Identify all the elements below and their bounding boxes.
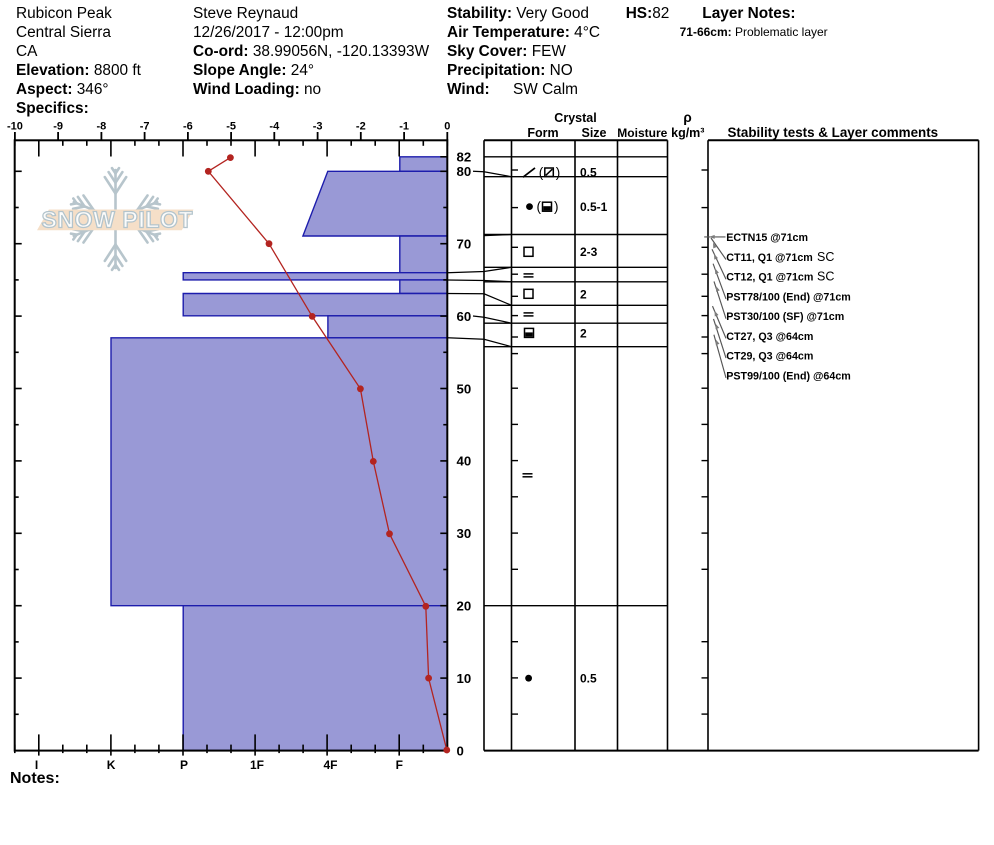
svg-text:0: 0 xyxy=(457,743,464,758)
svg-text:(: ( xyxy=(539,165,544,180)
svg-text:): ) xyxy=(554,199,559,214)
svg-text:0.5-1: 0.5-1 xyxy=(580,200,608,214)
svg-text:Notes:: Notes: xyxy=(10,770,60,787)
svg-text:Size: Size xyxy=(581,126,606,140)
svg-text:PST99/100 (End) @64cm: PST99/100 (End) @64cm xyxy=(726,370,850,382)
svg-text:-4: -4 xyxy=(269,121,280,133)
svg-text:-10: -10 xyxy=(7,121,23,133)
svg-text:SC: SC xyxy=(817,250,834,264)
svg-text:Specifics:: Specifics: xyxy=(16,100,89,117)
svg-text:4F: 4F xyxy=(323,758,337,772)
svg-text:0: 0 xyxy=(444,121,450,133)
svg-text:Steve Reynaud: Steve Reynaud xyxy=(193,5,298,22)
svg-text:0.5: 0.5 xyxy=(580,165,597,179)
svg-text:-5: -5 xyxy=(226,121,236,133)
svg-text:2: 2 xyxy=(580,326,587,340)
svg-text:HS:82: HS:82 xyxy=(626,5,670,22)
svg-text:CT29, Q3 @64cm: CT29, Q3 @64cm xyxy=(726,351,813,363)
svg-text:-8: -8 xyxy=(97,121,107,133)
svg-text:80: 80 xyxy=(457,164,472,179)
svg-text:CA: CA xyxy=(16,43,38,60)
svg-text:Wind:: Wind: xyxy=(447,81,490,98)
svg-text:K: K xyxy=(107,758,116,772)
svg-text:2-3: 2-3 xyxy=(580,245,598,259)
svg-text:-2: -2 xyxy=(356,121,366,133)
svg-text:SC: SC xyxy=(817,270,834,284)
svg-text:ECTN15 @71cm: ECTN15 @71cm xyxy=(726,232,808,244)
svg-text:Stability: Very Good: Stability: Very Good xyxy=(447,5,589,22)
svg-text:CT27, Q3 @64cm: CT27, Q3 @64cm xyxy=(726,331,813,343)
svg-text:SNOW PILOT: SNOW PILOT xyxy=(41,207,193,233)
svg-text:70: 70 xyxy=(457,237,472,252)
svg-text:Slope Angle: 24°: Slope Angle: 24° xyxy=(193,62,314,79)
svg-text:SW Calm: SW Calm xyxy=(513,81,578,98)
svg-text:2: 2 xyxy=(580,287,587,301)
svg-text:Air Temperature: 4°C: Air Temperature: 4°C xyxy=(447,24,600,41)
svg-text:40: 40 xyxy=(457,454,472,469)
svg-text:-3: -3 xyxy=(313,121,323,133)
svg-text:PST30/100 (SF) @71cm: PST30/100 (SF) @71cm xyxy=(726,311,844,323)
svg-text:CT12, Q1 @71cm: CT12, Q1 @71cm xyxy=(726,272,813,284)
svg-text:CT11, Q1 @71cm: CT11, Q1 @71cm xyxy=(726,252,812,264)
svg-text:PST78/100 (End) @71cm: PST78/100 (End) @71cm xyxy=(726,291,850,303)
svg-text:20: 20 xyxy=(457,599,472,614)
svg-text:-7: -7 xyxy=(140,121,150,133)
svg-text:0.5: 0.5 xyxy=(580,672,597,686)
svg-text:Rubicon Peak: Rubicon Peak xyxy=(16,5,112,22)
svg-text:Layer Notes:: Layer Notes: xyxy=(702,5,795,22)
svg-text:30: 30 xyxy=(457,526,472,541)
svg-text:Elevation: 8800 ft: Elevation: 8800 ft xyxy=(16,62,142,79)
svg-text:10: 10 xyxy=(457,671,472,686)
svg-text:F: F xyxy=(396,758,403,772)
svg-text:Moisture: Moisture xyxy=(617,126,667,140)
svg-text:71-66cm: Problematic layer: 71-66cm: Problematic layer xyxy=(680,25,828,39)
svg-text:50: 50 xyxy=(457,381,472,396)
svg-text:ρ: ρ xyxy=(683,110,691,125)
svg-text:1F: 1F xyxy=(250,758,264,772)
svg-text:-1: -1 xyxy=(399,121,409,133)
svg-text:Wind Loading: no: Wind Loading: no xyxy=(193,81,321,98)
svg-text:-9: -9 xyxy=(53,121,63,133)
svg-text:): ) xyxy=(556,165,561,180)
svg-text:Crystal: Crystal xyxy=(554,111,596,125)
svg-text:Aspect: 346°: Aspect: 346° xyxy=(16,81,109,98)
svg-text:Precipitation: NO: Precipitation: NO xyxy=(447,62,573,79)
svg-text:Form: Form xyxy=(527,126,558,140)
svg-text:Co-ord: 38.99056N, -120.13393W: Co-ord: 38.99056N, -120.13393W xyxy=(193,43,430,60)
svg-text:Central Sierra: Central Sierra xyxy=(16,24,111,41)
svg-text:Sky Cover: FEW: Sky Cover: FEW xyxy=(447,43,566,60)
svg-text:82: 82 xyxy=(457,150,472,165)
svg-text:60: 60 xyxy=(457,309,472,324)
svg-text:-6: -6 xyxy=(183,121,193,133)
svg-text:Stability tests & Layer commen: Stability tests & Layer comments xyxy=(728,125,939,140)
svg-text:12/26/2017 - 12:00pm: 12/26/2017 - 12:00pm xyxy=(193,24,344,41)
svg-text:(: ( xyxy=(537,199,542,214)
svg-text:kg/m³: kg/m³ xyxy=(671,126,704,140)
svg-text:P: P xyxy=(180,758,188,772)
